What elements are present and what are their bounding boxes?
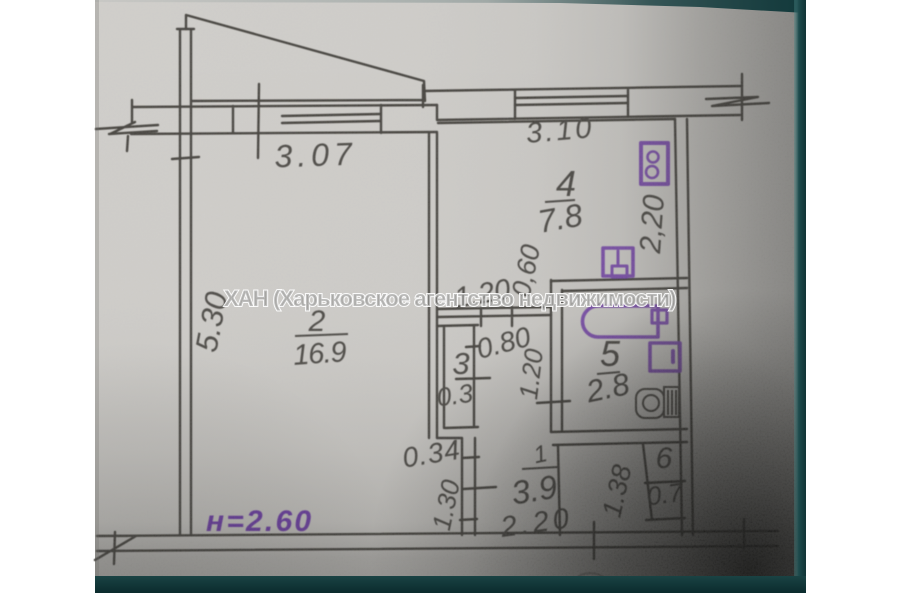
- svg-text:ХАН (Харьковское агентство нед: ХАН (Харьковское агентство недвижимости): [224, 286, 676, 311]
